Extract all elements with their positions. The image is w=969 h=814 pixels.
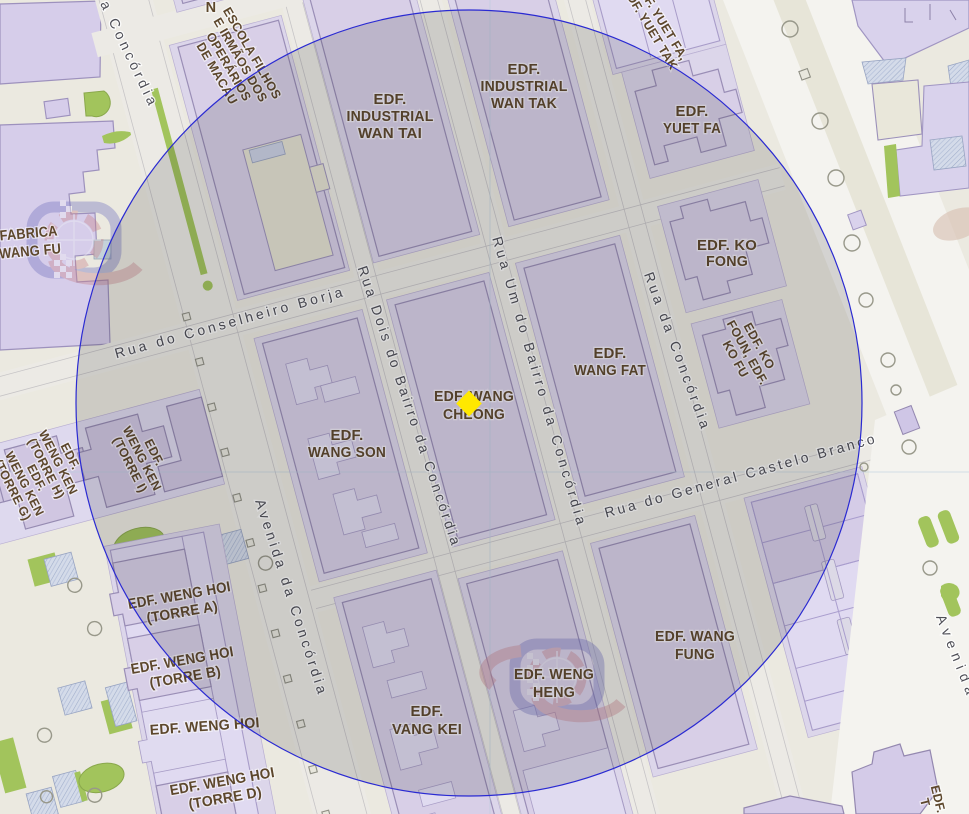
svg-text:FABRICAWANG FU: FABRICAWANG FU	[0, 223, 62, 262]
svg-text:N: N	[206, 0, 217, 16]
